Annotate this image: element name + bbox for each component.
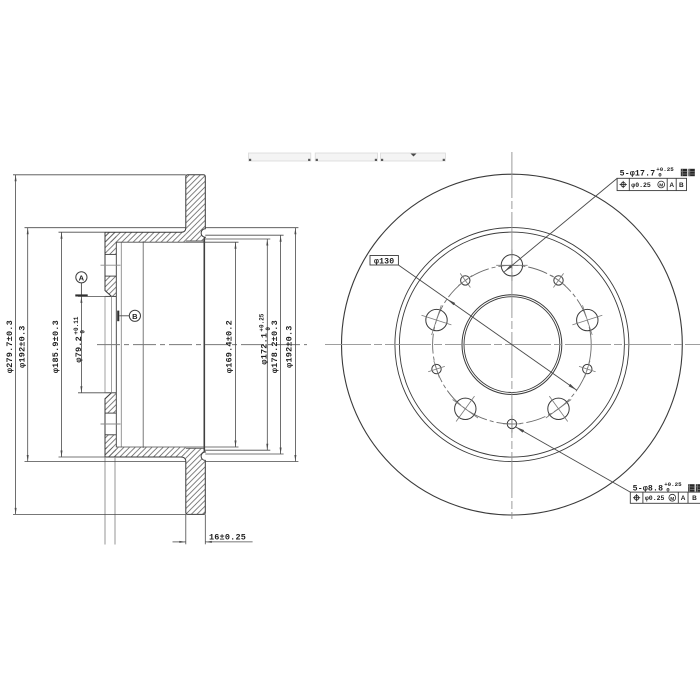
svg-text:φ279.7±0.3: φ279.7±0.3: [5, 320, 15, 373]
svg-text:A: A: [669, 182, 674, 189]
svg-text:M: M: [670, 496, 674, 502]
svg-text:0: 0: [79, 330, 86, 334]
svg-text:5-φ17.7: 5-φ17.7: [620, 169, 656, 178]
svg-text:φ178.2±0.3: φ178.2±0.3: [270, 320, 280, 373]
svg-text:φ172.1: φ172.1: [259, 333, 269, 365]
svg-text:φ130: φ130: [374, 257, 394, 266]
svg-text:B: B: [132, 312, 138, 321]
svg-text:A: A: [681, 495, 686, 502]
svg-text:φ192±0.3: φ192±0.3: [285, 325, 295, 367]
svg-text:φ79.2: φ79.2: [74, 336, 84, 363]
svg-text:φ169.4±0.2: φ169.4±0.2: [225, 320, 235, 373]
svg-text:φ185.9±0.3: φ185.9±0.3: [51, 320, 61, 373]
svg-text:φ192±0.3: φ192±0.3: [17, 325, 27, 367]
svg-text:B: B: [679, 182, 684, 189]
svg-text:A: A: [79, 273, 85, 282]
svg-text:B: B: [692, 495, 697, 502]
svg-text:0: 0: [666, 487, 670, 494]
svg-text:16±0.25: 16±0.25: [209, 532, 246, 542]
svg-text:φ0.25: φ0.25: [631, 182, 651, 189]
svg-text:0: 0: [658, 172, 662, 179]
svg-text:M: M: [659, 183, 663, 189]
svg-text:φ0.25: φ0.25: [645, 495, 665, 502]
